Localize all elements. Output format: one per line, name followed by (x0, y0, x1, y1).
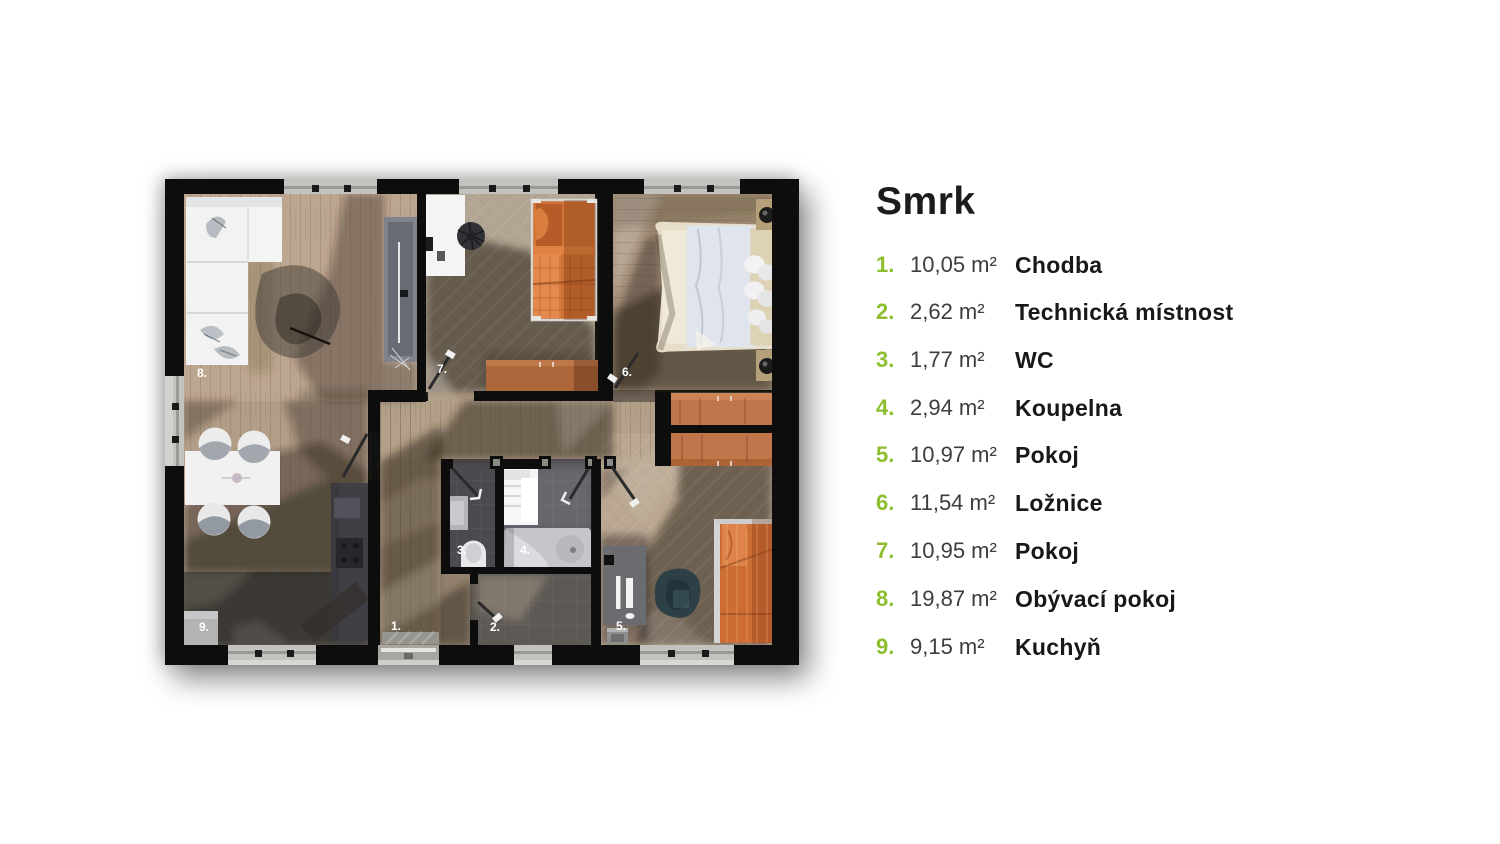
svg-text:8.: 8. (197, 366, 207, 380)
svg-text:4.: 4. (520, 543, 530, 557)
svg-text:9.: 9. (199, 620, 209, 634)
svg-text:1.: 1. (391, 619, 401, 633)
svg-text:7.: 7. (437, 362, 447, 376)
svg-text:2.: 2. (490, 620, 500, 634)
svg-text:6.: 6. (622, 365, 632, 379)
svg-text:3.: 3. (457, 543, 467, 557)
svg-text:5.: 5. (616, 619, 626, 633)
